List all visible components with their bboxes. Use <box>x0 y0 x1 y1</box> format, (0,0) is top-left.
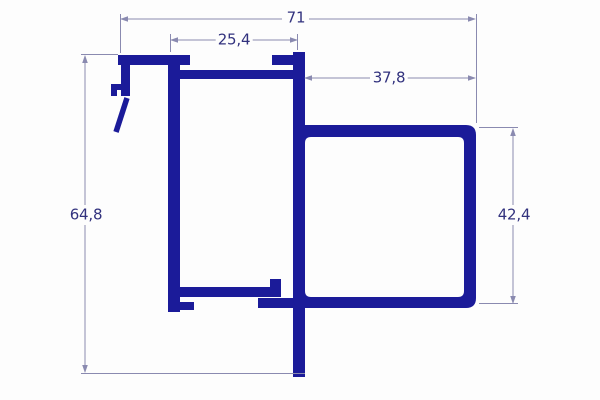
top-web <box>180 70 293 79</box>
left-hook-lip <box>111 84 117 96</box>
dim-378-arrow-right <box>468 75 476 81</box>
dimension-overall-height <box>81 55 305 374</box>
dim-label-tube-height: 42,4 <box>496 208 533 223</box>
bottom-cross-stub <box>258 298 294 308</box>
bottom-web-lip <box>270 279 281 288</box>
dim-254-arrow-right <box>290 37 298 43</box>
dim-71-arrow-right <box>468 16 476 22</box>
dim-648-arrow-top <box>82 55 88 63</box>
dim-378-arrow-left <box>304 75 312 81</box>
left-wall <box>168 55 180 312</box>
dim-424-arrow-bottom <box>510 296 516 304</box>
dim-label-overall-height: 64,8 <box>68 208 105 223</box>
left-hook-vertical <box>121 65 130 96</box>
dim-label-channel-width: 25,4 <box>216 33 253 48</box>
dim-71-arrow-left <box>120 16 128 22</box>
right-tube <box>293 125 476 308</box>
profile-drawing <box>0 0 600 400</box>
dim-424-arrow-top <box>510 128 516 136</box>
dim-254-arrow-left <box>170 37 178 43</box>
dim-label-overall-width: 71 <box>285 11 308 26</box>
bottom-web <box>180 287 281 297</box>
dim-label-tube-width: 37,8 <box>371 71 408 86</box>
gasket-flap <box>116 98 127 132</box>
dim-648-arrow-bottom <box>82 365 88 373</box>
cad-drawing-canvas: 71 25,4 37,8 64,8 42,4 <box>0 0 600 400</box>
left-foot-stub <box>180 302 194 310</box>
profile-outline <box>111 52 476 377</box>
top-right-stub <box>272 55 294 65</box>
